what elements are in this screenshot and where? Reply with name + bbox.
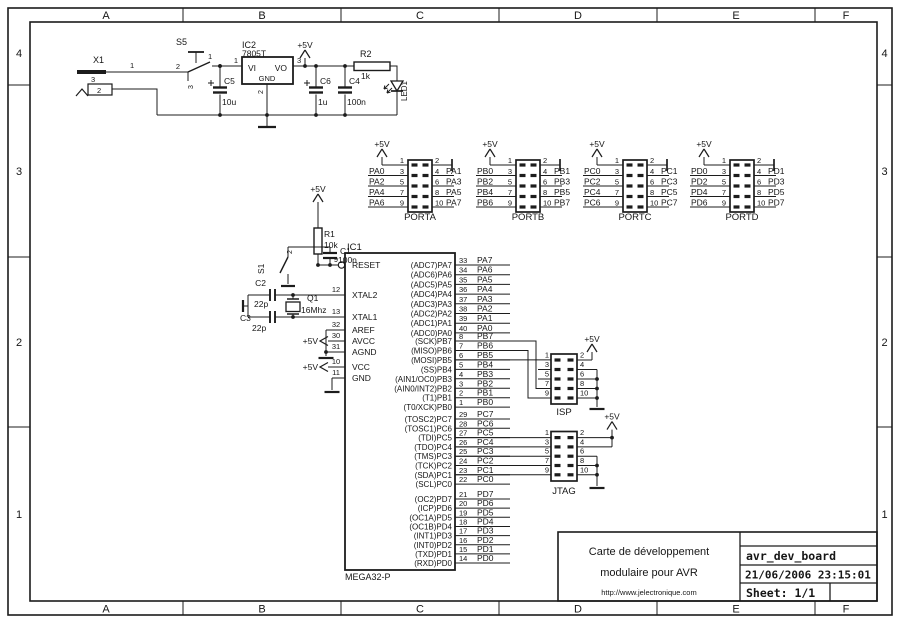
pin-number: 22 (459, 475, 467, 484)
pin-pad (745, 195, 751, 198)
pin-number: 10 (580, 465, 588, 474)
pin-number: 7 (400, 188, 404, 197)
pin-number: 16 (459, 536, 467, 545)
pin-number: 15 (459, 545, 467, 554)
junction-dot (595, 464, 599, 468)
supply-label: +5V (604, 412, 620, 422)
net-label: PC0 (584, 166, 601, 176)
pin-name: (RXD)PD0 (414, 559, 452, 568)
wire (455, 350, 551, 398)
pin-pad (627, 163, 633, 166)
pin-number: 9 (400, 199, 404, 208)
pin-number: 2 (287, 250, 294, 254)
grid-letter: C (416, 604, 424, 616)
pin-pad (627, 174, 633, 177)
net-label: PD4 (691, 187, 708, 197)
switch-lever (280, 257, 288, 273)
pin-name: (SCL)PC0 (416, 480, 453, 489)
pin-number: 4 (435, 167, 439, 176)
grid-letter: D (574, 604, 582, 616)
pin-number: 2 (543, 156, 547, 165)
pin-number: 9 (722, 199, 726, 208)
pin-number: 3 (400, 167, 404, 176)
pin-number: 5 (615, 178, 619, 187)
pin-number: 10 (435, 199, 443, 208)
pin-number: 10 (543, 199, 551, 208)
pin-pad (520, 184, 526, 187)
net-label: PA1 (477, 313, 493, 323)
pin-number: 3 (508, 167, 512, 176)
pin-number: 17 (459, 527, 467, 536)
pin-name: VO (275, 63, 288, 73)
net-label: PC0 (477, 474, 494, 484)
supply-arrow (300, 50, 305, 58)
junction-dot (595, 473, 599, 477)
grid-letter: F (843, 604, 850, 616)
supply-arrow (597, 149, 602, 157)
ref-designator: C2 (255, 278, 266, 288)
reset-circuit: +5VR110kS12C1100n (256, 184, 357, 286)
pin-number: 9 (545, 389, 549, 398)
grid-number: 2 (16, 337, 22, 349)
net-label: PD3 (768, 177, 785, 187)
pin-name: (SS)PB4 (421, 365, 453, 374)
junction-dot (595, 377, 599, 381)
pin-number: 9 (334, 255, 338, 264)
pin-number: 37 (459, 295, 467, 304)
pin-number: 1 (545, 351, 549, 360)
pin-number: 39 (459, 314, 467, 323)
pin-pad (745, 174, 751, 177)
pin-number: 1 (400, 156, 404, 165)
pin-number: 25 (459, 447, 467, 456)
supply-arrow (313, 194, 318, 202)
ref-designator: LED1 (400, 80, 409, 101)
pin-number: 1 (208, 52, 212, 61)
pin-pad (412, 195, 418, 198)
grid-letter: A (102, 10, 110, 22)
pin-pad (520, 174, 526, 177)
pin-number: 2 (650, 156, 654, 165)
grid-letter: D (574, 10, 582, 22)
pin-number: 2 (176, 62, 180, 71)
pin-number: 8 (459, 332, 463, 341)
pin-pad (555, 387, 561, 390)
wire (390, 66, 397, 81)
pin-pad (531, 163, 537, 166)
port-header-PORTB: +5V12PB034PB1PB256PB3PB478PB5PB6910PB7PO… (476, 139, 570, 223)
pin-pad (555, 436, 561, 439)
pin-number: 2 (459, 389, 463, 398)
pin-pad (423, 184, 429, 187)
pin-name: (TDI)PC5 (418, 434, 452, 443)
pin-name: (TXD)PD1 (415, 550, 452, 559)
pin-number: 8 (580, 456, 584, 465)
pin-number: 12 (332, 285, 340, 294)
pin-name: (OC2)PD7 (415, 495, 453, 504)
pin-number: 5 (508, 178, 512, 187)
supply-arrow (587, 344, 592, 352)
pin-pad (520, 205, 526, 208)
timestamp: 21/06/2006 23:15:01 (745, 569, 871, 582)
pin-number: 30 (332, 331, 340, 340)
net-label: PD2 (691, 177, 708, 187)
net-label: PA0 (369, 166, 385, 176)
pin-number: 9 (545, 465, 549, 474)
net-label: PD5 (768, 187, 785, 197)
port-header-PORTD: +5V12PD034PD1PD256PD3PD478PD5PD6910PD7PO… (690, 139, 785, 223)
pin-pad (555, 455, 561, 458)
pin-number: 18 (459, 517, 467, 526)
pin-pad (568, 358, 574, 361)
sheet-title: Carte de développement (589, 546, 709, 558)
pin-number: 6 (650, 178, 654, 187)
pin-name: (SCK)PB7 (415, 337, 452, 346)
pin-pad (555, 368, 561, 371)
pin-number: 7 (545, 379, 549, 388)
net-label: PC7 (661, 198, 678, 208)
pin-name: (TOSC2)PC7 (405, 415, 453, 424)
supply-label: +5V (310, 184, 326, 194)
pin-number: 4 (650, 167, 654, 176)
supply-label: +5V (303, 336, 319, 346)
supply-label: +5V (374, 139, 390, 149)
net-label: PC3 (661, 177, 678, 187)
pin-number: 23 (459, 466, 467, 475)
pin-name: (ADC7)PA7 (411, 261, 453, 270)
supply-arrow (592, 149, 597, 157)
pin-number: 28 (459, 419, 467, 428)
pin-number: 19 (459, 508, 467, 517)
pin-pad (423, 163, 429, 166)
pin-number: 1 (508, 156, 512, 165)
net-label: PA2 (477, 304, 493, 314)
pin-number: 34 (459, 266, 467, 275)
net-label: PB3 (554, 177, 570, 187)
supply-label: +5V (303, 362, 319, 372)
connector-name: JTAG (552, 486, 576, 497)
junction-dot (595, 387, 599, 391)
component-value: 22p (252, 323, 266, 333)
pin-number: 2 (435, 156, 439, 165)
pin-pad (555, 358, 561, 361)
pin-pad (627, 205, 633, 208)
pin-name: (OC1B)PD4 (409, 522, 452, 531)
supply-arrow (377, 149, 382, 157)
resistor-body (314, 228, 322, 254)
net-label: PA7 (446, 198, 462, 208)
pin-number: 1 (722, 156, 726, 165)
net-label: PC4 (584, 187, 601, 197)
pin-number: 6 (580, 370, 584, 379)
pin-number: 33 (459, 256, 467, 265)
net-label: PD6 (691, 198, 708, 208)
pin-number: 8 (435, 188, 439, 197)
connector-name: PORTC (618, 212, 651, 223)
net-label: PD0 (477, 553, 494, 563)
pin-name: (TCK)PC2 (415, 462, 452, 471)
pin-name: (OC1A)PD5 (409, 513, 452, 522)
supply-label: +5V (589, 139, 605, 149)
pin-pad (555, 464, 561, 467)
supply-label: +5V (696, 139, 712, 149)
net-label: PB5 (554, 187, 570, 197)
pin-pad (555, 396, 561, 399)
net-label: PD7 (768, 198, 785, 208)
pin-number: 13 (332, 307, 340, 316)
pin-number: 10 (580, 389, 588, 398)
supply-arrow (305, 50, 310, 58)
pin-number: 3 (545, 360, 549, 369)
junction-dot (314, 64, 318, 68)
jack-tip (77, 70, 106, 74)
net-label: PB0 (477, 397, 493, 407)
pin-name: (MISO)PB6 (411, 346, 452, 355)
pin-pad (638, 174, 644, 177)
grid-number: 3 (16, 166, 22, 178)
ref-designator: C5 (224, 76, 235, 86)
pin-pad (531, 205, 537, 208)
pin-number: 10 (650, 199, 658, 208)
net-label: PC5 (661, 187, 678, 197)
net-label: PA1 (446, 166, 462, 176)
net-label: PA4 (369, 187, 385, 197)
pin-name: (INT0)PD2 (414, 541, 453, 550)
pin-pad (734, 174, 740, 177)
connector-name: PORTB (512, 212, 545, 223)
pin-name: (ADC2)PA2 (411, 310, 453, 319)
sheet-title: modulaire pour AVR (600, 567, 698, 579)
pin-pad (412, 184, 418, 187)
supply-arrow (382, 149, 387, 157)
net-label: PA3 (446, 177, 462, 187)
pin-number: 5 (545, 447, 549, 456)
supply-arrow (318, 194, 323, 202)
pin-name: (ADC6)PA6 (411, 271, 453, 280)
pin-number: 4 (757, 167, 761, 176)
supply-arrow (607, 422, 612, 430)
pin-pad (555, 473, 561, 476)
component-value: MEGA32-P (345, 572, 391, 582)
pin-number: 3 (615, 167, 619, 176)
pin-number: 21 (459, 490, 467, 499)
url: http://www.jelectronique.com (601, 588, 696, 597)
pin-number: 3 (722, 167, 726, 176)
title-block: Carte de développementmodulaire pour AVR… (558, 532, 877, 601)
pin-number: 5 (722, 178, 726, 187)
pin-number: 3 (545, 437, 549, 446)
ref-designator: C3 (240, 313, 251, 323)
pin-number: 7 (545, 456, 549, 465)
pin-number: 6 (459, 351, 463, 360)
net-label: PA6 (477, 265, 493, 275)
pin-pad (745, 163, 751, 166)
pin-number: 8 (650, 188, 654, 197)
ref-designator: S5 (176, 37, 187, 47)
pin-number: 5 (545, 370, 549, 379)
pin-number: 4 (543, 167, 547, 176)
pin-name: GND (259, 74, 276, 83)
net-label: PA5 (446, 187, 462, 197)
pin-number: 31 (332, 342, 340, 351)
net-label: PB4 (477, 187, 493, 197)
pin-number: 7 (722, 188, 726, 197)
pin-pad (568, 387, 574, 390)
pin-pad (734, 205, 740, 208)
pin-pad (568, 436, 574, 439)
supply-arrow (320, 363, 328, 372)
pin-number: 11 (332, 368, 340, 377)
net-label: PB6 (477, 198, 493, 208)
pin-number: 3 (188, 85, 195, 89)
pin-number: 2 (580, 428, 584, 437)
net-label: PB1 (554, 166, 570, 176)
pin-number: 32 (332, 320, 340, 329)
pin-pad (638, 163, 644, 166)
pin-number: 2 (757, 156, 761, 165)
net-label: PB0 (477, 166, 493, 176)
supply-arrow (320, 337, 328, 346)
pin-pad (568, 455, 574, 458)
pin-number: 1 (234, 56, 238, 65)
power-supply-section: X1132S5213IC27805TVIVOGND132C510uC61uC41… (76, 37, 409, 127)
pin-pad (568, 377, 574, 380)
supply-label: +5V (584, 334, 600, 344)
component-value: 10u (222, 97, 236, 107)
grid-number: 4 (881, 48, 887, 60)
pin-name: RESET (352, 260, 380, 270)
pin-pad (531, 184, 537, 187)
pin-number: 1 (130, 61, 134, 70)
net-label: PD0 (691, 166, 708, 176)
pin-name: (TOSC1)PC6 (405, 424, 453, 433)
pin-name: (ADC4)PA4 (411, 290, 453, 299)
pin-number: 7 (615, 188, 619, 197)
grid-letter: A (102, 604, 110, 616)
pin-number: 35 (459, 275, 467, 284)
net-label: PA5 (477, 274, 493, 284)
pin-pad (412, 205, 418, 208)
pin-number: 5 (459, 360, 463, 369)
pin-name: (ADC5)PA5 (411, 280, 453, 289)
pin-number: 6 (757, 178, 761, 187)
schematic-canvas: AABBCCDDEEFF44332211X1132S5213IC27805TVI… (0, 0, 900, 623)
pin-pad (568, 464, 574, 467)
pin-number: 6 (543, 178, 547, 187)
pin-number: 3 (459, 379, 463, 388)
pin-name: XTAL1 (352, 312, 378, 322)
pin-name: XTAL2 (352, 290, 378, 300)
supply-arrow (485, 149, 490, 157)
supply-arrow (704, 149, 709, 157)
pin-name: (MOSI)PB5 (411, 356, 452, 365)
supply-arrow (612, 422, 617, 430)
pin-number: 4 (580, 360, 584, 369)
pin-number: 6 (435, 178, 439, 187)
pin-number: 2 (580, 351, 584, 360)
ref-designator: C6 (320, 76, 331, 86)
net-label: PB2 (477, 177, 493, 187)
grid-letter: F (843, 10, 850, 22)
pin-name: (T0/XCK)PB0 (404, 403, 453, 412)
pin-pad (412, 163, 418, 166)
pin-pad (520, 195, 526, 198)
ref-designator: R2 (360, 49, 372, 59)
pin-name: AREF (352, 325, 375, 335)
pin-number: 27 (459, 429, 467, 438)
pin-pad (627, 195, 633, 198)
pin-number: 6 (580, 447, 584, 456)
pin-name: GND (352, 373, 371, 383)
sheet-number: Sheet: 1/1 (746, 586, 815, 600)
ref-designator: S1 (256, 263, 266, 274)
pin-name: (INT1)PD3 (414, 532, 453, 541)
grid-number: 1 (881, 509, 887, 521)
pin-pad (745, 184, 751, 187)
pin-pad (734, 184, 740, 187)
grid-number: 1 (16, 509, 22, 521)
pin-name: (AIN0/INT2)PB2 (394, 384, 452, 393)
grid-number: 2 (881, 337, 887, 349)
jack-sleeve (76, 89, 88, 96)
supply-label: +5V (482, 139, 498, 149)
wire (112, 89, 157, 115)
pin-number: 4 (459, 370, 463, 379)
net-label: PB7 (554, 198, 570, 208)
pin-pad (568, 396, 574, 399)
schematic-sheet: AABBCCDDEEFF44332211X1132S5213IC27805TVI… (0, 0, 900, 623)
crystal-body (286, 302, 300, 312)
net-label: PD1 (768, 166, 785, 176)
port-header-PORTA: +5V12PA034PA1PA256PA3PA478PA5PA6910PA7PO… (368, 139, 462, 223)
pin-pad (423, 205, 429, 208)
pin-name: (T1)PB1 (422, 394, 452, 403)
pin-pad (531, 195, 537, 198)
pin-pad (555, 377, 561, 380)
pin-name: (ADC1)PA1 (411, 319, 453, 328)
net-label: PA4 (477, 284, 493, 294)
grid-letter: B (258, 604, 265, 616)
pin-number: 1 (545, 428, 549, 437)
pin-number: 10 (757, 199, 765, 208)
pin-pad (627, 184, 633, 187)
grid-number: 3 (881, 166, 887, 178)
component-value: 1u (318, 97, 328, 107)
pin-name: (SDA)PC1 (415, 471, 453, 480)
grid-letter: C (416, 10, 424, 22)
connector-name: PORTD (725, 212, 758, 223)
pin-pad (568, 368, 574, 371)
connector-name: ISP (556, 407, 571, 418)
doc-name: avr_dev_board (746, 549, 836, 564)
component-value: 22p (254, 299, 268, 309)
pin-name: (ADC3)PA3 (411, 300, 453, 309)
component-value: 10k (324, 240, 338, 250)
pin-pad (568, 473, 574, 476)
net-label: PA7 (477, 255, 493, 265)
pin-number: 1 (459, 398, 463, 407)
net-label: PC2 (584, 177, 601, 187)
pin-name: (ICP)PD6 (418, 504, 453, 513)
net-label: PA6 (369, 198, 385, 208)
grid-letter: E (732, 10, 739, 22)
pin-pad (531, 174, 537, 177)
pin-pad (638, 195, 644, 198)
pin-number: 29 (459, 410, 467, 419)
supply-arrow (592, 344, 597, 352)
pin-name: (TDO)PC4 (414, 443, 452, 452)
pin-name: AVCC (352, 336, 375, 346)
